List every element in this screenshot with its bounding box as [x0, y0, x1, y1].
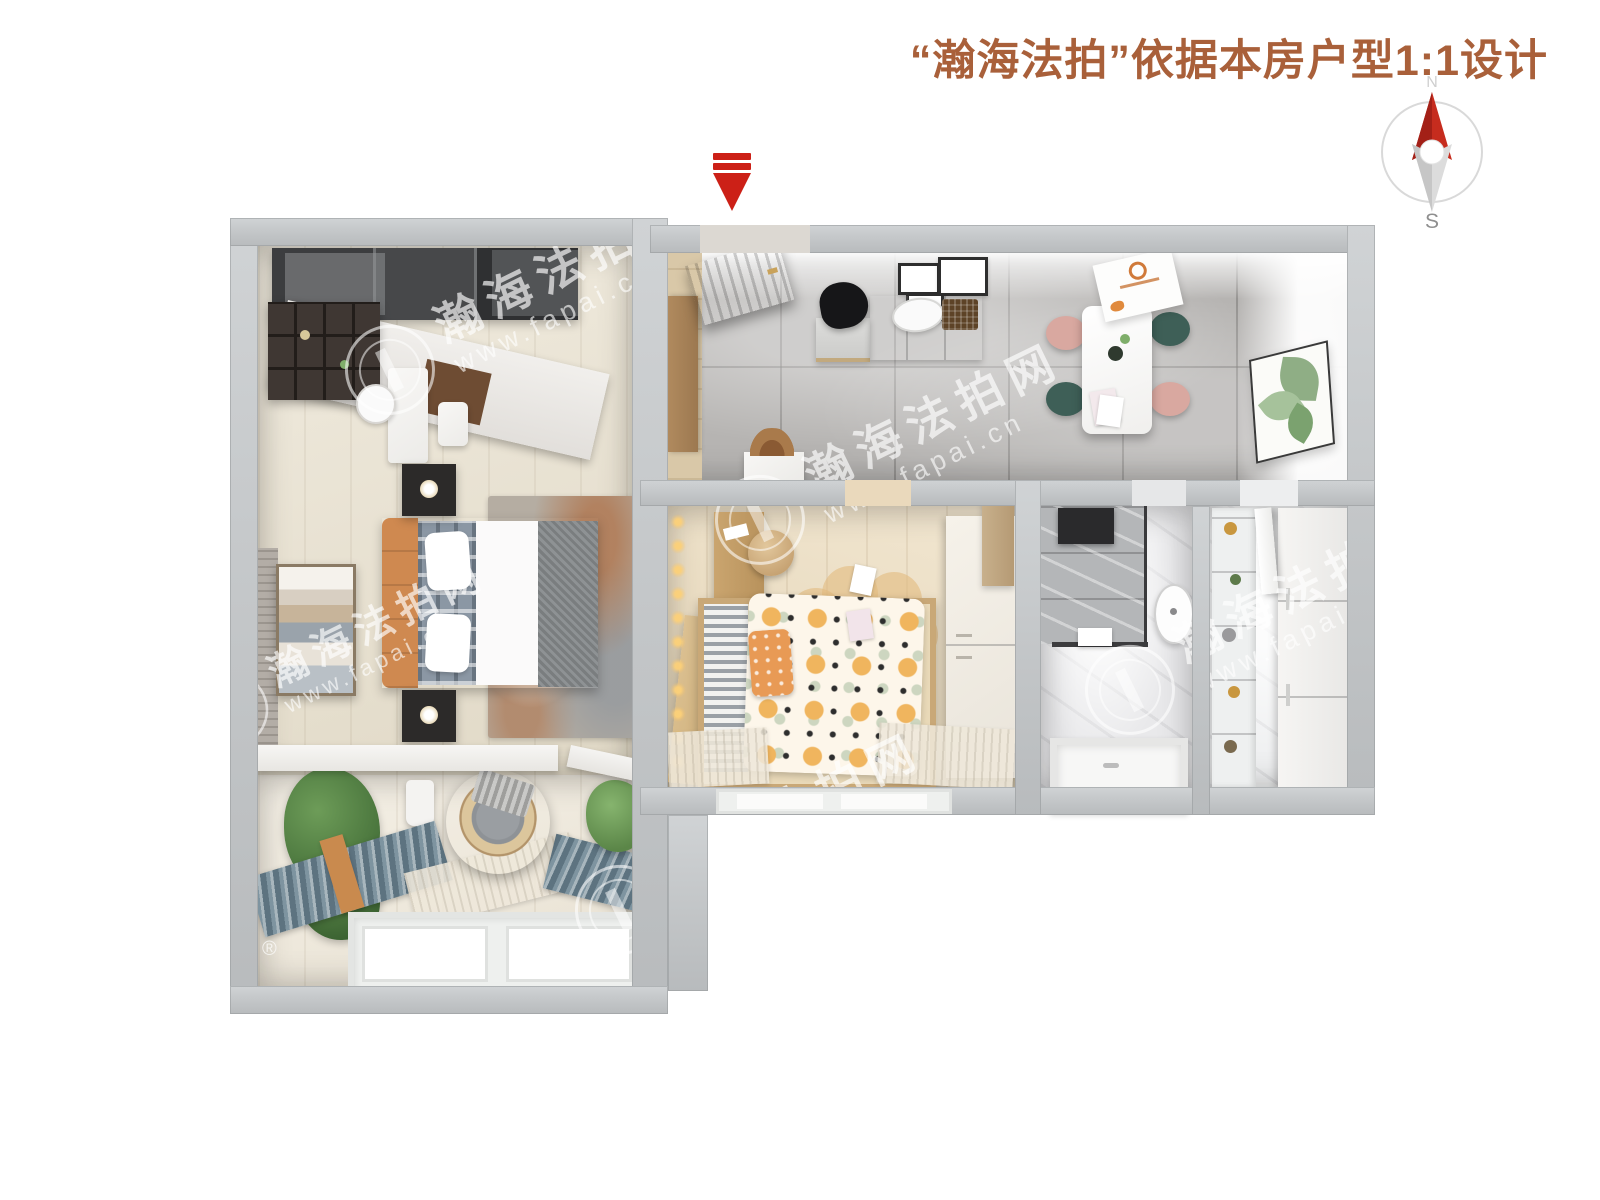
wall-north-left: [230, 218, 660, 246]
shelf-item-gold: [1224, 522, 1237, 535]
slat-accent-wall: [258, 548, 278, 758]
wardrobe-handle: [956, 634, 972, 637]
kids-sheer-curtain-left: [667, 727, 770, 788]
storage-basket: [942, 299, 978, 330]
cabinet-handle: [1286, 588, 1290, 610]
dining-chair-green: [1150, 312, 1190, 346]
nightstand: [402, 690, 456, 742]
entrance-door-opening: [700, 225, 810, 253]
master-wardrobe-panel: [492, 250, 578, 316]
entrance-arrow-bar: [713, 163, 751, 170]
dressing-table: [388, 368, 428, 463]
shelf-item-green: [1230, 574, 1241, 585]
bathroom-sink: [1154, 584, 1194, 644]
nightstand: [402, 464, 456, 516]
hanging-rattan-chair: [446, 770, 550, 874]
floorplan-render: “瀚海法拍”依据本房户型1:1设计 N S: [0, 0, 1600, 1200]
shelf-item-gold: [1228, 686, 1240, 698]
wall-bedroom2-bath: [1015, 480, 1041, 815]
compass-rose: N S: [1376, 76, 1488, 228]
window-pane: [506, 926, 632, 982]
window-pane: [362, 926, 488, 982]
vase-greenery: [1120, 334, 1130, 344]
bed-headboard-orange: [382, 518, 418, 688]
shower-glass-frame: [1144, 506, 1147, 644]
dining-chair-pink: [1150, 382, 1190, 416]
scattered-card: [846, 608, 874, 641]
shelf-item-brown: [1224, 740, 1237, 753]
window-pane: [737, 794, 823, 809]
bookshelf-plant: [340, 360, 349, 369]
door-handle: [767, 267, 778, 275]
compass-needle-icon: [1376, 76, 1488, 228]
wall-center-vertical: [632, 218, 668, 1014]
bookshelf: [268, 302, 380, 400]
entrance-arrow-icon: [712, 153, 752, 211]
cabinet-handle: [1286, 684, 1290, 706]
wardrobe-wood-panel: [982, 500, 1014, 586]
kitchen-door-opening: [1240, 480, 1298, 506]
entrance-arrow-bar: [713, 153, 751, 160]
sink-drain: [1170, 608, 1177, 615]
entrance-arrow-triangle: [713, 173, 751, 211]
bathroom-door-opening: [1132, 480, 1186, 506]
vanity-stool: [438, 402, 468, 446]
wardrobe-handle: [956, 656, 972, 659]
compass-north-label: N: [1426, 74, 1438, 92]
monstera-leaf-art: [1249, 340, 1335, 463]
poster-logo: [1127, 260, 1149, 282]
rain-shower-head: [1058, 508, 1114, 544]
desk-paper: [723, 523, 749, 540]
wall-west: [230, 218, 258, 1014]
wall-bath-kitchen: [1192, 506, 1210, 815]
console-table: [744, 452, 804, 480]
kids-bedroom-door-opening: [845, 480, 911, 506]
wall-artwork: [276, 564, 356, 696]
gray-throw-blanket: [538, 521, 598, 687]
compass-south-label: S: [1425, 210, 1439, 234]
dining-chair-pink: [1046, 316, 1086, 350]
wall-east: [1347, 225, 1375, 815]
magazine: [1096, 394, 1124, 427]
balcony-divider-ledge: [258, 745, 558, 771]
master-bed: [382, 518, 598, 688]
plant-pot-white: [406, 780, 434, 826]
round-pouf: [748, 530, 794, 576]
window-pane: [841, 794, 927, 809]
wall-picture-frame: [898, 263, 940, 295]
shelf-item-gray: [1222, 628, 1236, 642]
wall-balcony-east-stub: [668, 815, 708, 991]
watermark-registered-mark: ®: [262, 938, 277, 961]
tub-drain: [1103, 763, 1119, 768]
vanity-mirror: [356, 384, 396, 424]
table-lamp: [420, 706, 438, 724]
pillow: [425, 613, 472, 673]
table-vase: [1108, 346, 1123, 361]
folded-towel: [1078, 628, 1112, 646]
pillow: [424, 531, 472, 592]
pantry-shelves: [1212, 508, 1256, 787]
dining-table: [1082, 306, 1152, 434]
wall-south-left: [230, 986, 668, 1014]
pampas-plant: [750, 428, 794, 456]
master-bedroom-door: [668, 296, 698, 452]
poster-fish-illustration: [1109, 300, 1125, 313]
kitchen-tall-cabinets: [1278, 508, 1347, 787]
kids-bedroom-window: [716, 789, 952, 814]
dining-chair-green: [1046, 382, 1086, 416]
table-lamp: [420, 480, 438, 498]
orange-pillow: [748, 629, 795, 698]
wall-picture-frame: [938, 257, 988, 296]
bookshelf-item: [300, 330, 310, 340]
kids-sheer-curtain-right: [877, 722, 1016, 789]
